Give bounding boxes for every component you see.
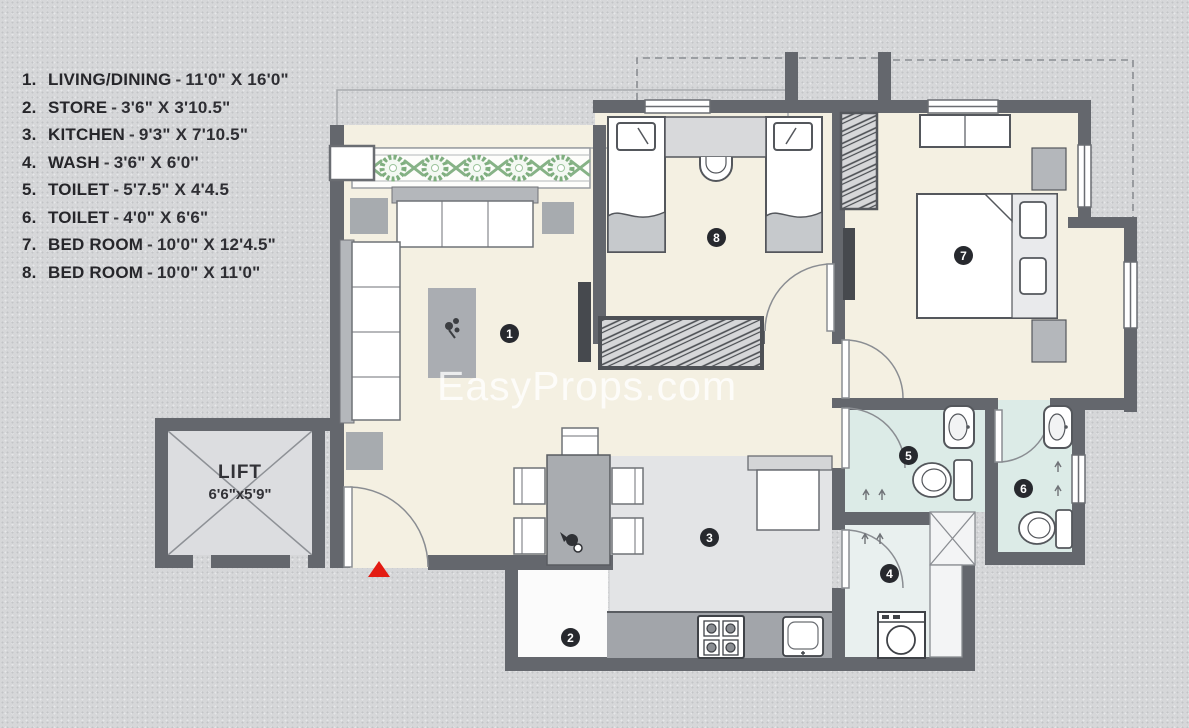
- blanket: [766, 212, 822, 252]
- sofa-4seat: [352, 242, 400, 420]
- side-table: [1032, 148, 1066, 190]
- room-number-badge-bedroom7: 7: [954, 246, 973, 265]
- chair: [700, 157, 732, 181]
- side-table: [1032, 320, 1066, 362]
- entrance-door-leaf: [344, 487, 352, 567]
- lift-title: LIFT: [168, 462, 312, 484]
- tv-unit: [578, 282, 591, 362]
- legend-item: 8.BED ROOM-10'0" X 11'0": [22, 263, 289, 283]
- wc-tank: [954, 460, 972, 500]
- bedroom7-bay-floor: [1078, 227, 1126, 402]
- sink: [783, 617, 823, 656]
- platform: [748, 456, 832, 470]
- side-table: [346, 432, 383, 470]
- wc-tank: [1056, 510, 1072, 548]
- room-number-badge-wash: 4: [880, 564, 899, 583]
- wardrobe: [841, 113, 877, 209]
- room-number-badge-bedroom8: 8: [707, 228, 726, 247]
- sofa-3seat: [397, 201, 533, 247]
- store-floor: [518, 570, 608, 658]
- dining-chair: [612, 518, 643, 554]
- legend-item: 5.TOILET-5'7.5" X 4'4.5: [22, 180, 289, 200]
- wash-door-leaf: [842, 530, 849, 588]
- legend-item: 1.LIVING/DINING-11'0" X 16'0": [22, 70, 289, 90]
- pillow: [617, 123, 655, 150]
- legend-item: 7.BED ROOM-10'0" X 12'4.5": [22, 235, 289, 255]
- side-table: [542, 202, 574, 234]
- toilet5-door-leaf: [842, 408, 849, 468]
- room-number-badge-toilet6: 6: [1014, 479, 1033, 498]
- floor-plan-page: 1.LIVING/DINING-11'0" X 16'0" 2.STORE-3'…: [0, 0, 1189, 728]
- side-table: [350, 198, 388, 234]
- dining-chair: [514, 468, 545, 504]
- room-number-badge-kitchen: 3: [700, 528, 719, 547]
- bedroom8-door-leaf: [827, 264, 834, 331]
- tv-unit: [843, 228, 855, 300]
- pillow: [774, 123, 812, 150]
- dining-chair: [612, 468, 643, 504]
- flower-bed: [352, 148, 590, 188]
- room-number-badge-store: 2: [561, 628, 580, 647]
- dining-chair: [514, 518, 545, 554]
- bedroom7-door-leaf: [842, 340, 849, 398]
- room-number-badge-toilet5: 5: [899, 446, 918, 465]
- watermark: EasyProps.com: [437, 363, 737, 410]
- legend-item: 2.STORE-3'6" X 3'10.5": [22, 98, 289, 118]
- dining-chair: [562, 428, 598, 456]
- wardrobe: [600, 318, 762, 368]
- legend-item: 3.KITCHEN-9'3" X 7'10.5": [22, 125, 289, 145]
- study-table: [665, 117, 766, 157]
- legend-item: 6.TOILET-4'0" X 6'6": [22, 208, 289, 228]
- wc-bowl: [913, 463, 951, 497]
- pillow: [1020, 258, 1046, 294]
- toilet6-door-leaf: [995, 410, 1002, 462]
- pillow: [1020, 202, 1046, 238]
- lift-dimensions: 6'6"x5'9": [168, 486, 312, 503]
- room-number-badge-living: 1: [500, 324, 519, 343]
- lift-label: LIFT 6'6"x5'9": [168, 462, 312, 503]
- legend-item: 4.WASH-3'6" X 6'0'': [22, 153, 289, 173]
- blanket: [608, 212, 665, 252]
- cabinet: [757, 470, 819, 530]
- legend: 1.LIVING/DINING-11'0" X 16'0" 2.STORE-3'…: [22, 70, 289, 283]
